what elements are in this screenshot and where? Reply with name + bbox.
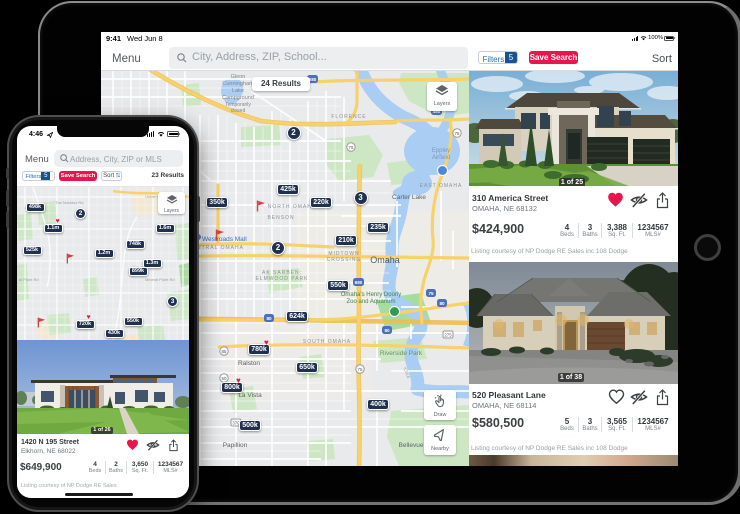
svg-text:NORTH OMAHA: NORTH OMAHA xyxy=(268,204,316,210)
svg-text:BENSON: BENSON xyxy=(267,215,294,221)
svg-text:Campground: Campground xyxy=(222,95,254,101)
svg-text:The Maddox Rd: The Maddox Rd xyxy=(55,200,83,205)
svg-text:Glenn: Glenn xyxy=(231,74,246,80)
svg-text:Airfield: Airfield xyxy=(432,155,450,161)
svg-text:275: 275 xyxy=(444,333,452,338)
svg-text:EAST OMAHA: EAST OMAHA xyxy=(420,183,463,189)
svg-text:Carter Lake: Carter Lake xyxy=(392,194,426,201)
svg-text:FLORENCE: FLORENCE xyxy=(331,114,366,120)
svg-text:Riverside Park: Riverside Park xyxy=(380,350,423,357)
svg-text:Omaha: Omaha xyxy=(370,255,400,265)
svg-text:Mineral Point Rd: Mineral Point Rd xyxy=(145,277,175,282)
svg-text:Lake: Lake xyxy=(232,88,244,94)
svg-text:Zoo and Aquarium: Zoo and Aquarium xyxy=(346,299,395,305)
svg-text:Cunningham: Cunningham xyxy=(222,81,254,87)
svg-text:75: 75 xyxy=(455,131,460,136)
svg-text:75: 75 xyxy=(358,367,363,372)
svg-text:SOUTH OMAHA: SOUTH OMAHA xyxy=(303,339,351,345)
svg-text:La Vista: La Vista xyxy=(238,392,262,399)
svg-text:Papillion: Papillion xyxy=(223,442,248,449)
svg-text:75: 75 xyxy=(428,291,434,296)
svg-text:80: 80 xyxy=(266,316,272,321)
svg-text:Bellevue: Bellevue xyxy=(399,442,424,449)
svg-text:50: 50 xyxy=(222,376,227,381)
svg-text:80: 80 xyxy=(384,328,390,333)
svg-text:Eppley: Eppley xyxy=(432,148,450,154)
svg-text:Ralston: Ralston xyxy=(238,360,260,367)
svg-text:CROSSING: CROSSING xyxy=(327,257,362,263)
svg-text:75: 75 xyxy=(349,145,354,150)
svg-text:ELMWOOD PARK: ELMWOOD PARK xyxy=(255,276,308,282)
svg-text:closed: closed xyxy=(231,108,246,114)
svg-text:680: 680 xyxy=(355,280,363,285)
svg-text:85: 85 xyxy=(222,349,227,354)
svg-text:80: 80 xyxy=(439,301,445,306)
svg-text:Omaha's Henry Doorly: Omaha's Henry Doorly xyxy=(341,292,402,298)
svg-text:al Point Rd: al Point Rd xyxy=(19,277,39,282)
